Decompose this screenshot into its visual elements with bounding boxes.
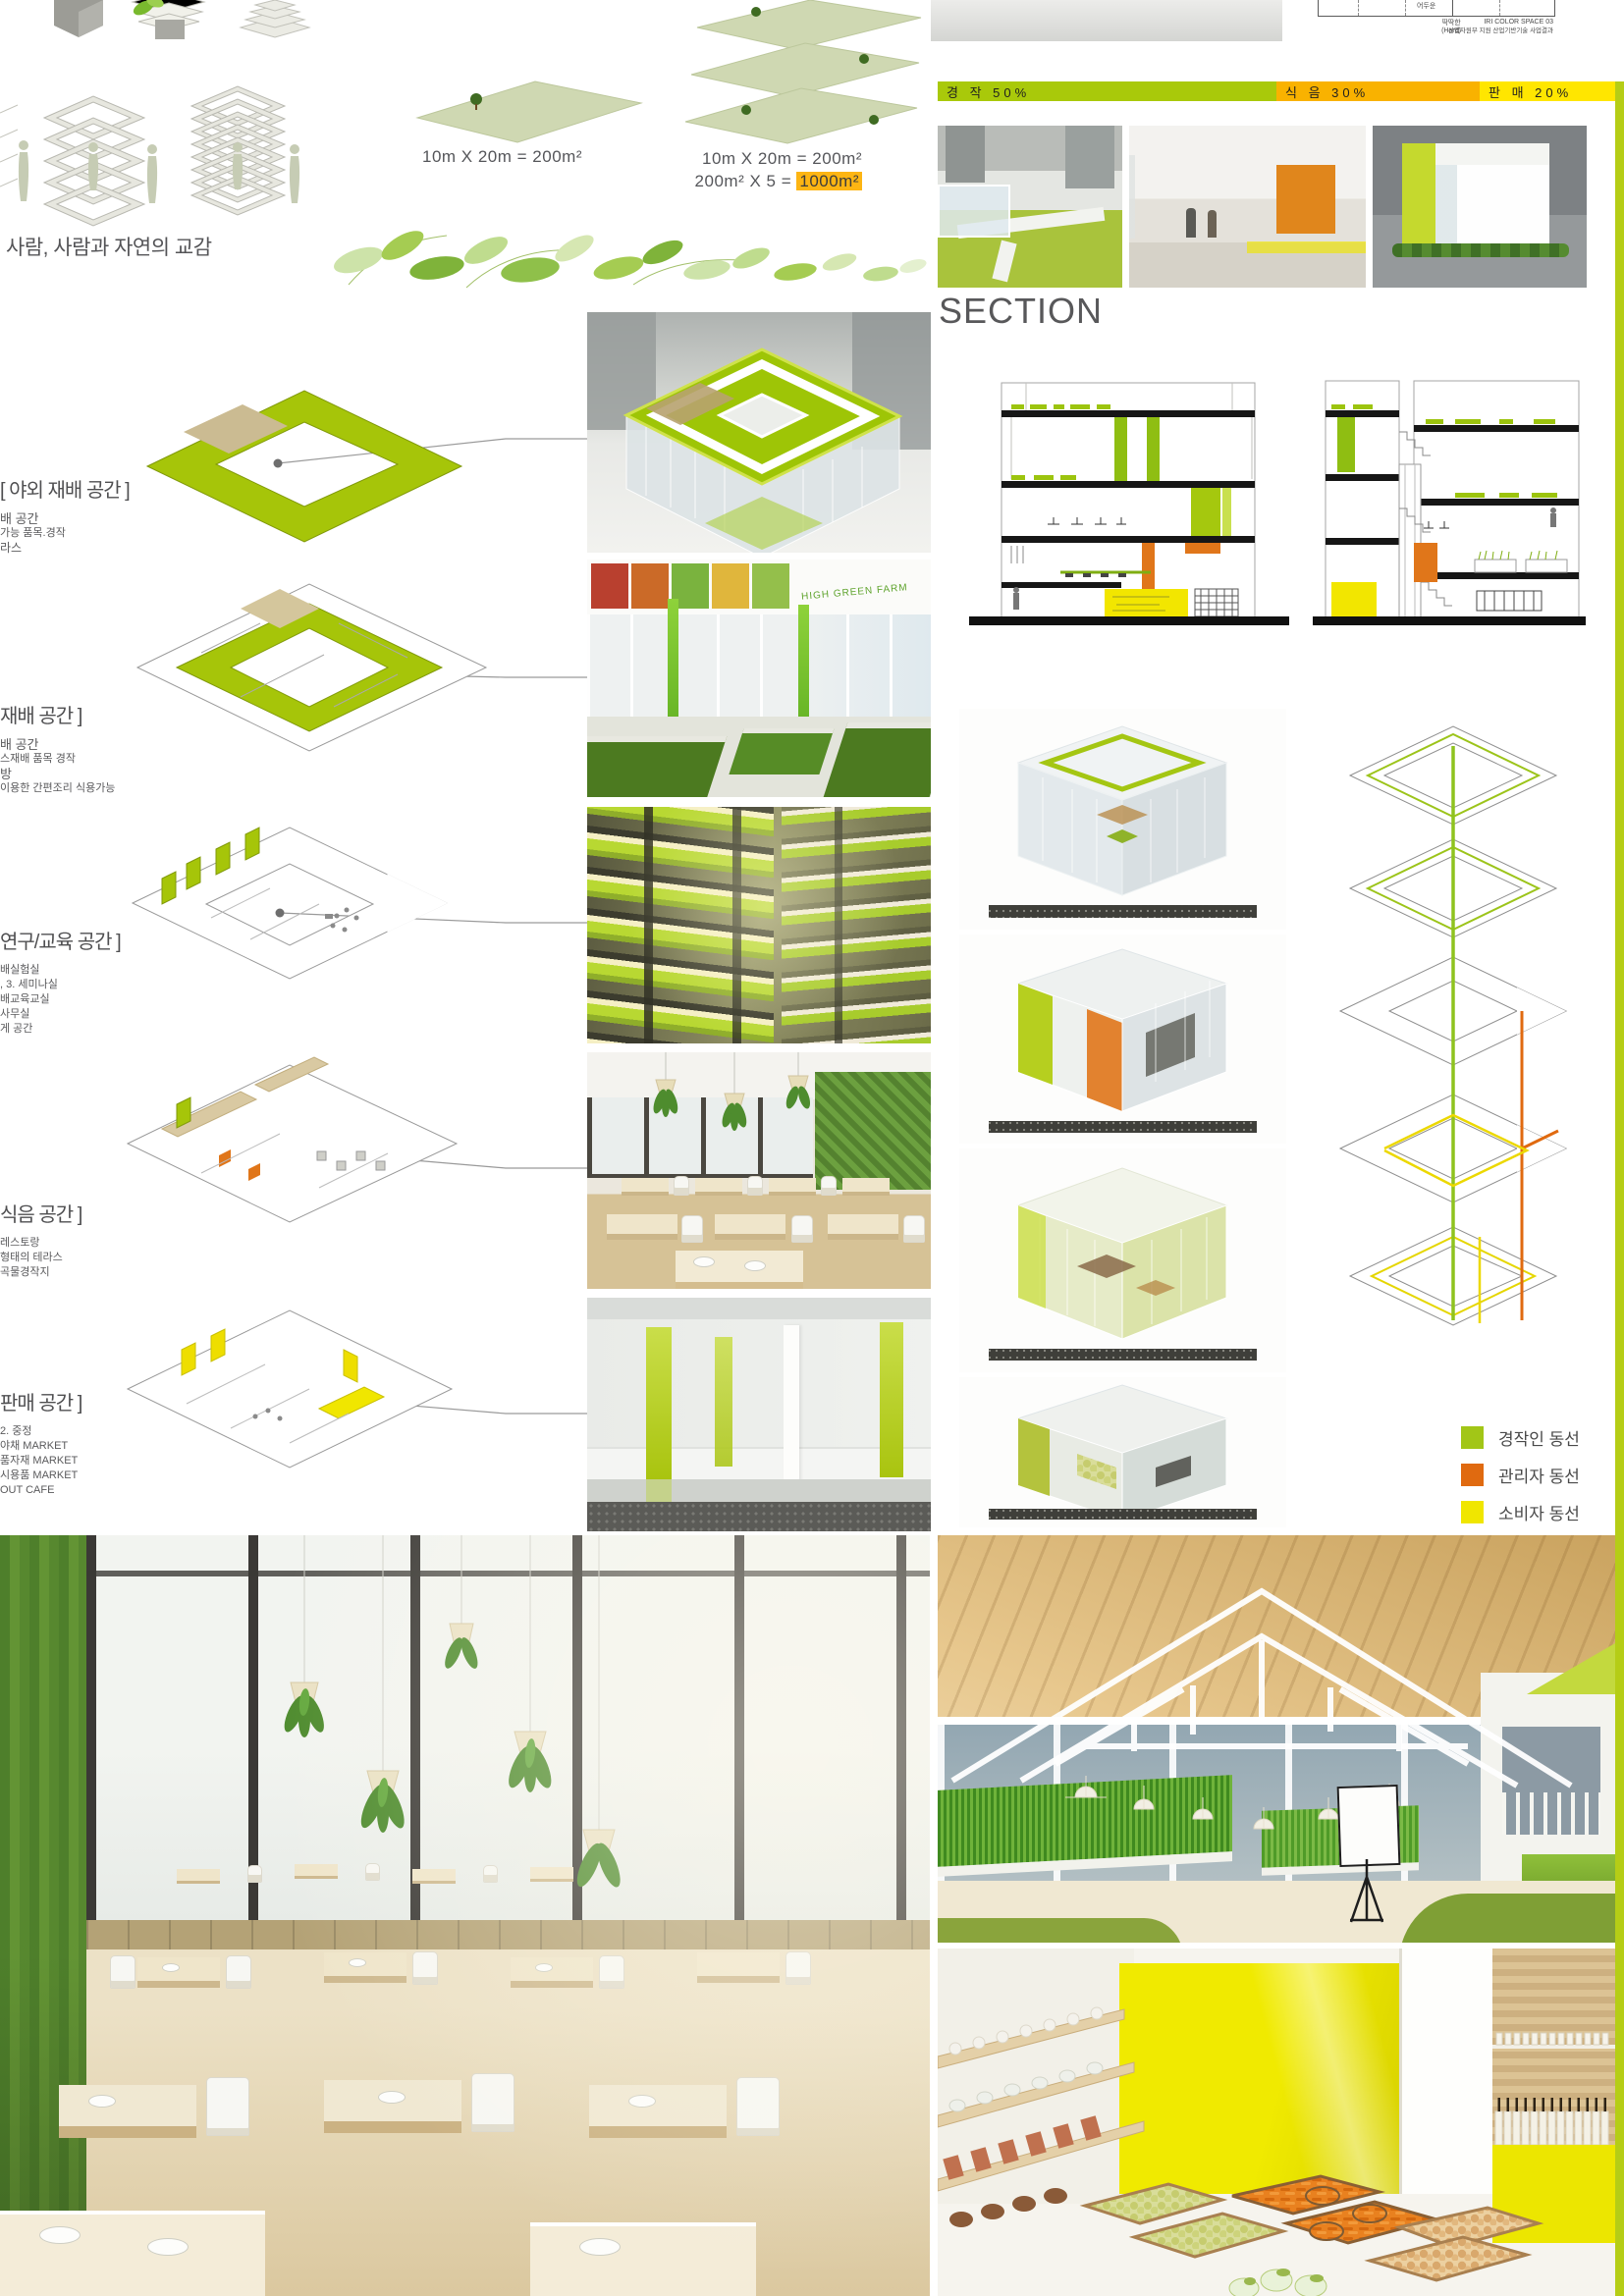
- photo-market-hall-interior: [587, 1298, 931, 1531]
- bar-segment-cultivation: 경 작 50%: [938, 81, 1276, 101]
- floor-plan-research: [133, 828, 447, 979]
- area-label-left: 10m X 20m = 200m²: [422, 147, 582, 167]
- hanging-plants: [607, 1052, 823, 1160]
- iri-cell-label: 어두운: [1417, 3, 1435, 11]
- chair: [681, 1215, 703, 1243]
- section-drawing-b: [1308, 371, 1591, 634]
- photo-vertical-farm-racks: [587, 807, 931, 1043]
- chair: [747, 1176, 763, 1196]
- render-glass-box: [1373, 126, 1587, 288]
- render-model-mid-level: [959, 934, 1286, 1144]
- door-opening: [1399, 1949, 1498, 2194]
- legend-swatch-green: [1461, 1426, 1484, 1449]
- yellow-wall-gloss: [1119, 1963, 1404, 2194]
- chair: [903, 1215, 925, 1243]
- model-cube: [959, 1148, 1286, 1372]
- render-model-market-level: [959, 1377, 1286, 1527]
- lime-panel: [646, 1327, 672, 1479]
- dining-table: [622, 1178, 669, 1196]
- plate: [744, 1260, 766, 1271]
- exploded-floor-plans: [93, 329, 604, 1534]
- glass-mullions: [587, 614, 931, 722]
- circulation-legend: 경작인 동선 관리자 동선 소비자 동선: [1461, 1425, 1580, 1537]
- photo-restaurant-large: [0, 1535, 930, 2296]
- model-cube: [959, 1377, 1286, 1527]
- leader-lines: [270, 439, 587, 1414]
- photo-market-shop: [938, 1949, 1615, 2296]
- legend-swatch-yellow: [1461, 1501, 1484, 1523]
- model-cube: [959, 934, 1286, 1144]
- plate: [693, 1256, 715, 1267]
- white-path: [992, 240, 1016, 283]
- chair: [791, 1215, 813, 1243]
- model-cube: [959, 709, 1286, 930]
- sunlight-glow: [0, 1535, 930, 2296]
- grass-mound: [938, 1918, 1183, 1943]
- floor-plan-cultivation: [137, 584, 486, 751]
- lime-panel: [880, 1322, 903, 1477]
- plate-diagram-single: [407, 34, 653, 152]
- plate-diagram-stacked: [677, 0, 933, 147]
- green-roof-illustration: [587, 322, 931, 553]
- floor-label-dining: 식음 공간 ] 레스토랑 형태의 테라스 곡물경작지: [0, 1199, 167, 1280]
- figure-silhouette: [1186, 208, 1196, 238]
- dining-table-front: [676, 1251, 803, 1289]
- flipchart-board: [1337, 1785, 1401, 1867]
- light-glow: [587, 807, 931, 1043]
- chair: [674, 1176, 689, 1196]
- banner-tile: [591, 563, 628, 609]
- figure-silhouette: [1208, 210, 1217, 238]
- right-edge-accent-strip: [1615, 81, 1624, 2296]
- white-truss: [938, 1550, 1615, 1894]
- flipchart-stand: [1326, 1859, 1414, 1938]
- iri-table: 어두운: [1318, 0, 1555, 17]
- dotted-walkway: [587, 1502, 931, 1531]
- bar-segment-dining: 식 음 30%: [1276, 81, 1480, 101]
- grass-plot: [729, 728, 834, 774]
- photo-restaurant-interior: [587, 1052, 931, 1289]
- banner-tile: [752, 563, 789, 609]
- iri-title: IRI COLOR SPACE 03: [1414, 19, 1553, 27]
- concept-caption: 사람, 사람과 자연의 교감: [6, 232, 212, 261]
- chair: [821, 1176, 837, 1196]
- green-wall: [815, 1072, 931, 1190]
- floor-label-market: 판매 공간 ] 2. 중정 야채 MARKET 품자재 MARKET 시용품 M…: [0, 1387, 167, 1498]
- area-right-line1: 10m X 20m = 200m²: [687, 149, 862, 169]
- photo-green-roof: [587, 312, 931, 553]
- white-column: [784, 1325, 799, 1482]
- banner-tile: [712, 563, 749, 609]
- building-block: [946, 126, 985, 183]
- bar-segment-sales: 판 매 20%: [1480, 81, 1615, 101]
- area-label-right: 10m X 20m = 200m² 200m² X 5 = 1000m²: [687, 149, 862, 191]
- grayscale-image-fragment: [931, 0, 1282, 41]
- floor-label-outdoor-cultivation: [ 야외 재배 공간 ] 배 공간 가능 품목.경작 라스: [0, 474, 167, 556]
- floor-reflection: [646, 1479, 672, 1502]
- floor-label-research-education: 연구/교육 공간 ] 배실험실 , 3. 세미나실 배교육교실 사무실 게 공간: [0, 926, 167, 1037]
- render-model-roof-level: [959, 709, 1286, 930]
- building-block: [1065, 126, 1114, 188]
- yellow-floor-band: [1247, 241, 1366, 253]
- foliage-illustration: [319, 211, 933, 292]
- render-courtyard-aerial: [938, 126, 1122, 288]
- photo-greenhouse-attic: [938, 1535, 1615, 1943]
- glass-front: [1435, 165, 1549, 246]
- render-model-glass-level: [959, 1148, 1286, 1372]
- dining-table: [828, 1214, 898, 1240]
- lime-panel: [1402, 143, 1435, 246]
- legend-item-manager: 관리자 동선: [1461, 1463, 1580, 1487]
- shrub-row: [1392, 243, 1569, 257]
- dining-table: [769, 1178, 816, 1196]
- banner-tile: [631, 563, 669, 609]
- produce-crates: [1075, 2166, 1576, 2296]
- legend-item-cultivator: 경작인 동선: [1461, 1425, 1580, 1450]
- legend-item-consumer: 소비자 동선: [1461, 1500, 1580, 1524]
- glass-pavilion: [938, 185, 1010, 238]
- area-right-line2: 200m² X 5 = 1000m²: [687, 172, 862, 191]
- ceiling-strip: [587, 1298, 931, 1319]
- dining-table: [842, 1178, 890, 1196]
- orange-kiosk: [1276, 165, 1335, 234]
- grass-plot: [587, 736, 727, 797]
- render-interior-hall: [1129, 126, 1366, 288]
- presentation-board: 10m X 20m = 200m² 10m X 20m = 200m² 200m…: [0, 0, 1624, 2296]
- iri-credit: 산업자원부 지원 산업기반기술 사업결과: [1370, 27, 1553, 35]
- circulation-axon-diagram: [1291, 687, 1615, 1423]
- program-ratio-bar: 경 작 50% 식 음 30% 판 매 20%: [938, 81, 1615, 101]
- photo-farm-market-pavilion: HIGH GREEN FARM: [587, 560, 931, 797]
- section-drawing-a: [967, 371, 1291, 634]
- dining-table: [715, 1214, 785, 1240]
- dining-table: [695, 1178, 742, 1196]
- roof-plan: [147, 391, 461, 542]
- floor-label-cultivation: 재배 공간 ] 배 공간 스재배 품목 경작 방 이용한 간편조리 식용가능: [0, 700, 167, 796]
- legend-swatch-orange: [1461, 1464, 1484, 1486]
- area-highlight: 1000m²: [796, 172, 862, 190]
- floor-plan-dining: [128, 1057, 457, 1222]
- section-heading: SECTION: [939, 291, 1103, 332]
- floor-plan-market: [128, 1310, 452, 1468]
- lime-panel: [715, 1337, 732, 1467]
- dining-table: [607, 1214, 677, 1240]
